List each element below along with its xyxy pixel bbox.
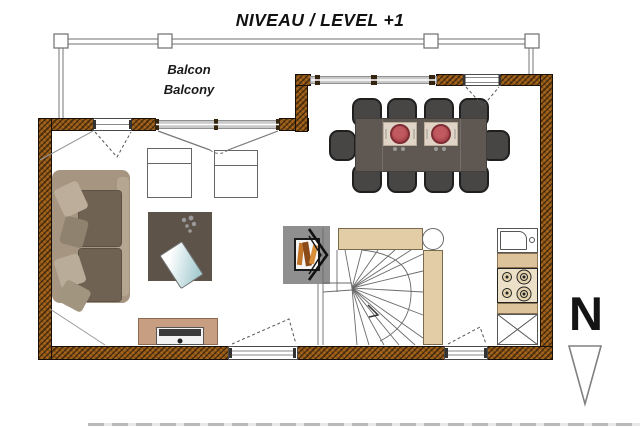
wall-top-dining-2 (436, 74, 464, 86)
wall-top-living-2 (131, 118, 156, 131)
wall-right (540, 74, 553, 360)
plate (390, 124, 410, 144)
window-bottom-left (228, 346, 298, 360)
armchair-backrest-line (148, 163, 191, 164)
armchair-backrest-line (215, 165, 257, 166)
plan-title: NIVEAU / LEVEL +1 (160, 10, 480, 31)
stair-newel-circle (422, 228, 444, 250)
wall-left (38, 118, 52, 360)
kitchen-counter (497, 303, 538, 314)
kitchen-counter (497, 253, 538, 268)
stair-treads (345, 250, 423, 345)
plate (431, 124, 451, 144)
dining-chair (329, 130, 356, 161)
stair-walkline (362, 250, 411, 341)
scan-edge-artifact (88, 423, 640, 426)
balcony-label-fr: Balcon (139, 60, 239, 80)
dining-table (355, 118, 487, 172)
north-arrow-icon (569, 346, 601, 404)
kitchen-stove (497, 268, 538, 303)
wall-bottom-3 (487, 346, 553, 360)
wall-bottom-2 (297, 346, 445, 360)
door-dining-top (463, 74, 501, 86)
armchair (147, 148, 192, 198)
window-bottom-right (444, 346, 488, 360)
wall-top-dining-1 (295, 74, 311, 86)
kitchen-unit-crossed (497, 314, 538, 345)
armchair (214, 150, 258, 198)
north-label: N (560, 288, 612, 340)
balcony-label-en: Balcony (139, 80, 239, 100)
tv (159, 329, 201, 336)
balcony-label: Balcon Balcony (139, 60, 239, 100)
stair-direction-arrow (368, 305, 378, 317)
stair-wall-beam (338, 228, 423, 250)
kitchen-sink-bowl (500, 231, 527, 250)
wall-bottom-1 (38, 346, 229, 360)
window-living-top (93, 118, 132, 131)
stair-wall-vertical (423, 250, 443, 345)
floor-plan: NIVEAU / LEVEL +1 Balcon Balcony N (0, 0, 640, 427)
